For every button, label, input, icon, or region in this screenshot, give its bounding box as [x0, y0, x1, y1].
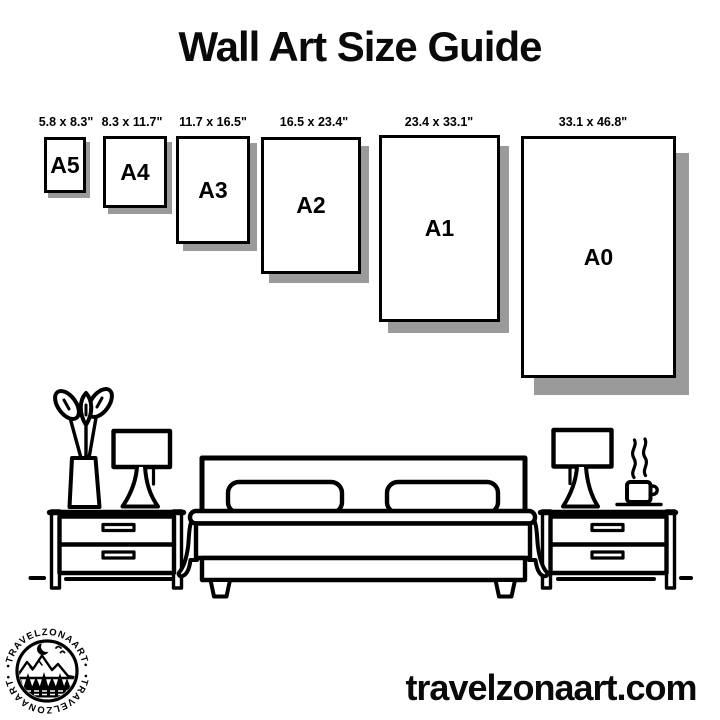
- paper-name: A0: [584, 244, 613, 271]
- nightstand-right: [541, 511, 676, 588]
- paper-name: A4: [120, 159, 149, 186]
- bedroom-illustration: [0, 380, 720, 605]
- table-lamp-right-icon: [554, 430, 612, 507]
- steam: [644, 439, 647, 476]
- pillow-right: [387, 482, 498, 513]
- paper-a5: A5: [44, 137, 86, 193]
- website-url: travelzonaart.com: [391, 667, 711, 709]
- paper-a1: A1: [379, 135, 500, 322]
- size-label-a2: 16.5 x 23.4": [244, 115, 384, 129]
- bed-frame: [202, 558, 525, 580]
- paper-a3: A3: [176, 136, 250, 244]
- paper-name: A1: [425, 215, 454, 242]
- vase: [70, 458, 100, 507]
- bed: [190, 458, 535, 597]
- paper-name: A5: [50, 152, 79, 179]
- paper-name: A2: [296, 192, 325, 219]
- bed-leg-left: [211, 580, 231, 597]
- paper-name: A3: [198, 177, 227, 204]
- coffee-cup-icon: [617, 439, 661, 505]
- bed-leg-right: [496, 580, 516, 597]
- pillow-left: [228, 482, 342, 513]
- size-label-a0: 33.1 x 46.8": [523, 115, 663, 129]
- brand-logo: •TRAVELZONAART• •TRAVELZONAART•: [3, 622, 93, 718]
- paper-a0: A0: [521, 136, 676, 378]
- size-label-a1: 23.4 x 33.1": [369, 115, 509, 129]
- table-lamp-left-icon: [114, 431, 171, 507]
- mattress: [196, 524, 530, 559]
- page-title: Wall Art Size Guide: [0, 24, 720, 70]
- paper-a2: A2: [261, 137, 361, 274]
- size-guide-infographic: Wall Art Size Guide 5.8 x 8.3" 8.3 x 11.…: [0, 0, 720, 720]
- steam: [633, 440, 636, 478]
- paper-a4: A4: [103, 136, 167, 208]
- plant-vase-icon: [50, 385, 116, 507]
- nightstand-left: [50, 511, 184, 588]
